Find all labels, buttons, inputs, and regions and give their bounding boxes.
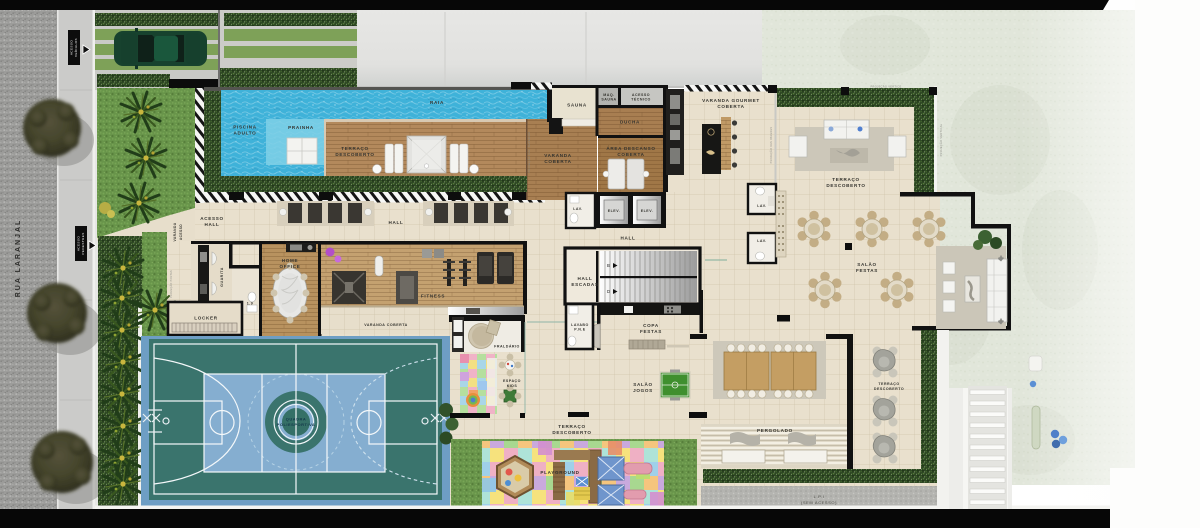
svg-text:VARANDA COBERTA: VARANDA COBERTA xyxy=(364,323,408,327)
svg-text:SAUNA: SAUNA xyxy=(601,98,616,102)
svg-text:COPA: COPA xyxy=(643,323,659,328)
svg-text:ESPAÇO: ESPAÇO xyxy=(503,379,521,383)
svg-text:JOGOS: JOGOS xyxy=(633,388,653,393)
svg-text:HALL: HALL xyxy=(388,220,403,225)
svg-text:ACESSO: ACESSO xyxy=(69,40,73,55)
svg-text:1.9: 1.9 xyxy=(247,302,254,306)
svg-text:HALL: HALL xyxy=(204,222,219,227)
svg-text:P.N.E: P.N.E xyxy=(574,328,586,332)
svg-text:PROJEÇÃO PORTAS: PROJEÇÃO PORTAS xyxy=(170,270,173,298)
svg-text:SALÃO: SALÃO xyxy=(633,381,653,387)
svg-text:PROJEÇÃO DAS PAREDES: PROJEÇÃO DAS PAREDES xyxy=(770,127,773,164)
svg-text:OFFICE: OFFICE xyxy=(279,264,300,269)
svg-text:RAIA: RAIA xyxy=(430,100,444,105)
svg-text:PLAYGROUND: PLAYGROUND xyxy=(540,470,579,475)
svg-text:LAVABO: LAVABO xyxy=(571,323,589,327)
svg-text:DUCHA: DUCHA xyxy=(620,120,640,125)
svg-text:ACESSO: ACESSO xyxy=(179,224,183,240)
svg-text:PRAINHA: PRAINHA xyxy=(288,125,314,130)
svg-text:SAUNA: SAUNA xyxy=(567,103,587,108)
svg-text:VARANDA GOURMET: VARANDA GOURMET xyxy=(702,98,760,103)
svg-text:(SEM ACESSO): (SEM ACESSO) xyxy=(801,500,837,505)
svg-text:ACESSO: ACESSO xyxy=(76,236,80,251)
svg-text:DESCOBERTO: DESCOBERTO xyxy=(826,183,865,188)
svg-text:PISCINA: PISCINA xyxy=(233,125,257,130)
svg-text:DESCOBERTO: DESCOBERTO xyxy=(552,430,591,435)
svg-text:LAV.: LAV. xyxy=(573,207,583,211)
svg-text:LAV.: LAV. xyxy=(757,239,767,243)
svg-text:SALÃO: SALÃO xyxy=(857,261,877,267)
svg-text:TERRAÇO: TERRAÇO xyxy=(558,424,586,429)
svg-text:MAQ.: MAQ. xyxy=(603,93,614,97)
svg-text:LOCKER: LOCKER xyxy=(194,316,218,321)
svg-text:POLIESPORTIVA: POLIESPORTIVA xyxy=(277,422,316,427)
svg-text:FESTAS: FESTAS xyxy=(640,329,662,334)
svg-text:D: D xyxy=(607,289,610,294)
svg-text:PEDESTRES: PEDESTRES xyxy=(81,232,85,254)
svg-text:TERRAÇO: TERRAÇO xyxy=(341,146,369,151)
svg-text:ELEV.: ELEV. xyxy=(641,209,654,213)
svg-text:COBERTA: COBERTA xyxy=(717,104,744,109)
svg-text:ÁREA DESCANSO: ÁREA DESCANSO xyxy=(606,145,655,151)
svg-text:VEÍCULOS: VEÍCULOS xyxy=(74,38,78,57)
svg-text:TERRAÇO: TERRAÇO xyxy=(878,382,899,386)
svg-text:HALL: HALL xyxy=(620,236,635,241)
svg-text:ACESSO: ACESSO xyxy=(632,93,650,97)
svg-text:ADULTO: ADULTO xyxy=(234,131,257,136)
svg-text:DESCOBERTO: DESCOBERTO xyxy=(335,152,374,157)
svg-text:ACESSO: ACESSO xyxy=(200,216,224,221)
svg-text:ELEV.: ELEV. xyxy=(608,209,621,213)
svg-text:HOME: HOME xyxy=(282,258,299,263)
svg-text:B: B xyxy=(607,263,610,268)
svg-text:DESCOBERTO: DESCOBERTO xyxy=(874,387,904,391)
svg-text:TERRAÇO: TERRAÇO xyxy=(832,177,860,182)
svg-text:PERGOLADO: PERGOLADO xyxy=(757,428,793,433)
svg-text:RUA LARANJAL: RUA LARANJAL xyxy=(15,219,22,298)
svg-text:ESCADAS: ESCADAS xyxy=(571,282,598,287)
svg-text:LAV.: LAV. xyxy=(757,204,767,208)
svg-text:HALL: HALL xyxy=(577,276,592,281)
svg-text:FITNESS: FITNESS xyxy=(421,294,445,299)
svg-text:KIDS: KIDS xyxy=(507,384,518,388)
svg-text:FESTAS: FESTAS xyxy=(856,268,878,273)
svg-text:COBERTA: COBERTA xyxy=(617,152,644,157)
svg-text:TÉCNICO: TÉCNICO xyxy=(631,97,651,102)
svg-text:COBERTA: COBERTA xyxy=(544,159,571,164)
svg-text:VARANDA: VARANDA xyxy=(173,222,177,241)
svg-text:FRALDÁRIO: FRALDÁRIO xyxy=(494,344,520,349)
svg-text:VARANDA: VARANDA xyxy=(544,153,572,158)
svg-text:QUADRA: QUADRA xyxy=(286,417,307,422)
svg-text:L.P.I: L.P.I xyxy=(814,494,825,499)
svg-text:GUARITA: GUARITA xyxy=(220,267,224,287)
